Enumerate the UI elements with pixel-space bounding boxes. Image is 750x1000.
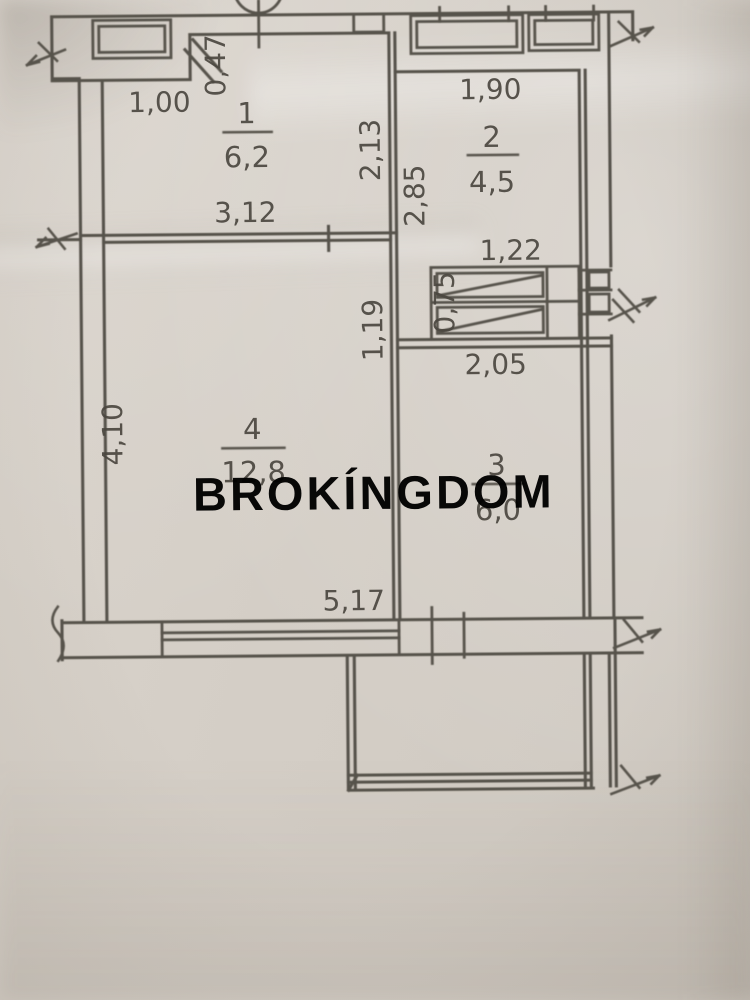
dim-room4-height: 4,10	[96, 403, 130, 466]
dim-room2-height: 2,85	[398, 164, 432, 227]
plan-labels: 1 6,2 2 4,5 3 6,0 4 12,8 1,00 0,47 3,12 …	[93, 31, 545, 619]
watermark-text: BROKÍNGDOM	[193, 464, 555, 520]
room-2-area: 4,5	[469, 165, 515, 199]
plan-linework	[26, 0, 661, 799]
window-glazing	[162, 631, 399, 640]
dim-room3-width: 2,05	[464, 348, 527, 382]
balcony-railing	[348, 773, 593, 790]
dim-niche-width: 1,00	[128, 86, 191, 120]
window-icon	[411, 15, 523, 54]
dim-shaft-width: 1,22	[479, 234, 542, 268]
break-mark-icon	[614, 620, 660, 648]
dim-bottom-wall-width: 5,17	[322, 584, 385, 618]
interior-walls	[37, 31, 614, 623]
dim-wall-segment: 1,19	[356, 299, 390, 362]
floor-plan-photo: 1 6,2 2 4,5 3 6,0 4 12,8 1,00 0,47 3,12 …	[0, 0, 750, 1000]
balcony-outline	[347, 618, 616, 790]
dim-room1-height: 2,13	[354, 119, 388, 182]
room-1-number: 1	[237, 96, 256, 130]
dim-room1-width: 3,12	[214, 196, 277, 230]
window-icon	[93, 20, 171, 59]
wall-pilaster	[354, 14, 384, 32]
room-4-number: 4	[243, 412, 262, 446]
floor-plan-drawing: 1 6,2 2 4,5 3 6,0 4 12,8 1,00 0,47 3,12 …	[0, 0, 750, 1000]
break-mark-icon	[609, 290, 655, 322]
room-1-area: 6,2	[224, 140, 270, 174]
room-2-number: 2	[482, 120, 501, 154]
dim-room2-width: 1,90	[459, 73, 522, 107]
window-icon	[529, 14, 599, 51]
dim-shaft-height: 0,75	[428, 271, 462, 334]
break-mark-icon	[27, 43, 65, 65]
dim-niche-depth: 0,47	[199, 34, 233, 97]
axis-marker-icon	[234, 0, 283, 47]
break-mark-icon	[611, 766, 659, 794]
